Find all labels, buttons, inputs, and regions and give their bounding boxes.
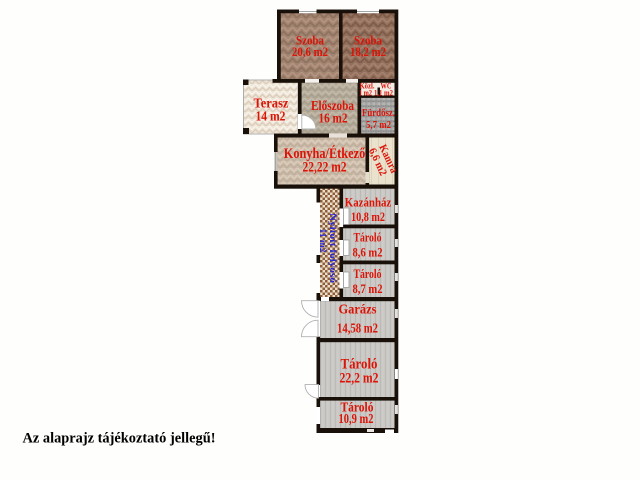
svg-text:16 m2: 16 m2: [319, 112, 348, 127]
svg-text:18,2 m2: 18,2 m2: [350, 44, 386, 59]
svg-text:11 m2: 11 m2: [317, 229, 327, 253]
svg-text:1 m2: 1 m2: [359, 89, 372, 98]
svg-text:10,8 m2: 10,8 m2: [351, 209, 385, 224]
svg-text:14 m2: 14 m2: [256, 110, 286, 125]
svg-text:Nyitott folyosó: Nyitott folyosó: [327, 213, 337, 283]
svg-text:Tároló: Tároló: [354, 266, 382, 281]
svg-text:10,9 m2: 10,9 m2: [339, 411, 374, 426]
svg-text:Garázs: Garázs: [339, 303, 377, 318]
svg-text:14,58 m2: 14,58 m2: [337, 322, 378, 337]
svg-text:5,7 m2: 5,7 m2: [366, 119, 391, 131]
svg-text:Tároló: Tároló: [354, 230, 382, 245]
svg-text:Kazánház: Kazánház: [345, 195, 392, 210]
svg-text:8,7 m2: 8,7 m2: [353, 281, 383, 296]
svg-text:22,22 m2: 22,22 m2: [303, 160, 347, 176]
svg-text:22,2 m2: 22,2 m2: [340, 371, 379, 387]
svg-text:1,1 m2: 1,1 m2: [374, 89, 393, 98]
svg-text:20,6 m2: 20,6 m2: [292, 44, 328, 59]
svg-text:Az alaprajz tájékoztató jelleg: Az alaprajz tájékoztató jellegű!: [23, 430, 216, 447]
svg-text:8,6 m2: 8,6 m2: [353, 245, 383, 260]
svg-text:Fürdősz.: Fürdősz.: [362, 107, 395, 119]
